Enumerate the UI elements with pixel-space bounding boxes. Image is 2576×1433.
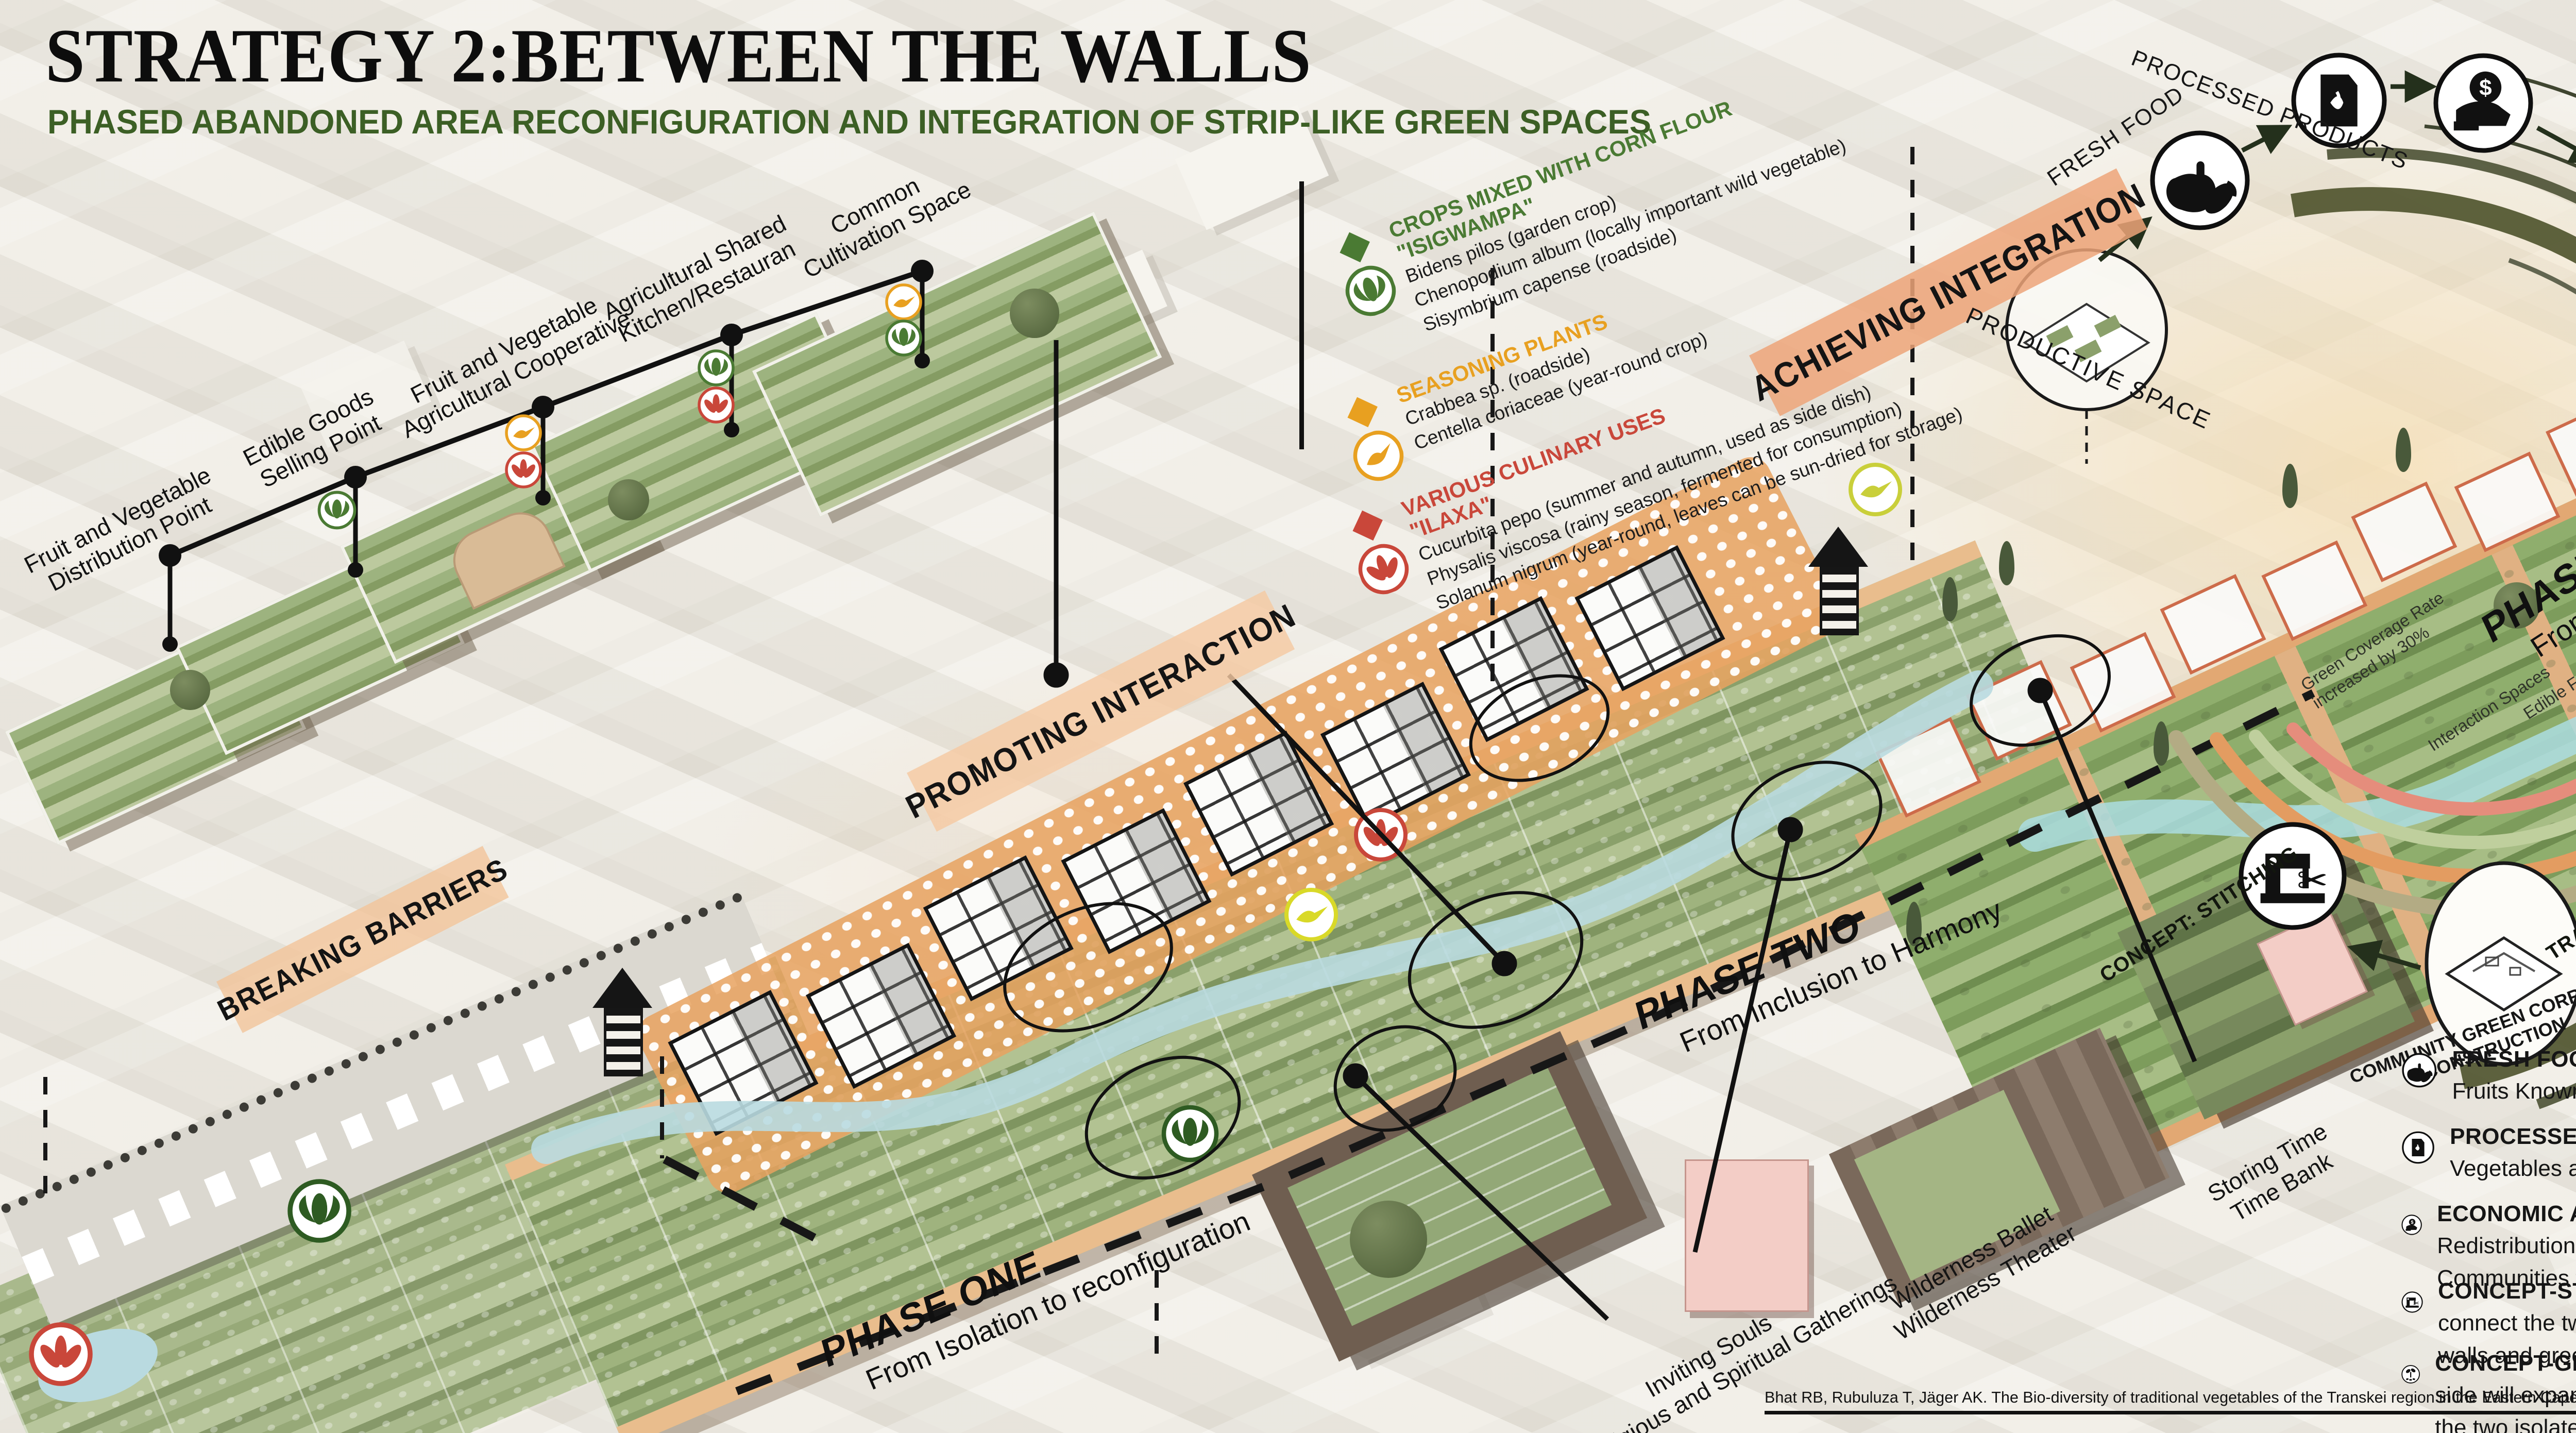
corn-icon [290, 1182, 349, 1240]
orange-diamond-marker [1347, 397, 1377, 427]
green-diamond-marker [1340, 232, 1369, 262]
infographic-canvas: $ ✂ [0, 0, 2576, 1433]
leaves-icon [31, 1325, 90, 1384]
corn-icon [699, 351, 733, 385]
page-title: STRATEGY 2:BETWEEN THE WALLS [45, 11, 1312, 100]
bird-icon [1286, 890, 1336, 939]
bird-icon [506, 416, 540, 450]
bird-icon [887, 285, 921, 319]
pepper-icon [2401, 1043, 2438, 1097]
up-arrow [1808, 527, 1870, 637]
economic-activities-circle [2436, 56, 2531, 150]
package-icon [2401, 1121, 2435, 1174]
corn-icon [319, 493, 355, 528]
coin-hand-icon [2401, 1198, 2422, 1252]
page-subtitle: PHASED ABANDONED AREA RECONFIGURATION AN… [47, 102, 1651, 141]
legend-row-processed-products: PROCESSED PRODUCTS: Mainly Dried Vegetab… [2401, 1121, 2576, 1185]
fresh-food-circle [2153, 133, 2247, 228]
corn-icon [1164, 1107, 1216, 1160]
legend-row-fresh-food: FRESH FOOD: Mainly Local Vegetables and … [2401, 1043, 2576, 1108]
bird-icon [1851, 465, 1900, 514]
red-diamond-marker [1352, 511, 1382, 541]
stream-center [546, 685, 1978, 1149]
sewing-icon [2401, 1275, 2424, 1329]
citation: Bhat RB, Rubuluza T, Jäger AK. The Bio-d… [1765, 1388, 2576, 1414]
leaves-icon [699, 388, 733, 422]
up-arrow [592, 968, 654, 1078]
plant-legend-divider [1299, 181, 1304, 449]
corn-icon [887, 321, 921, 355]
leaves-icon [506, 453, 540, 487]
